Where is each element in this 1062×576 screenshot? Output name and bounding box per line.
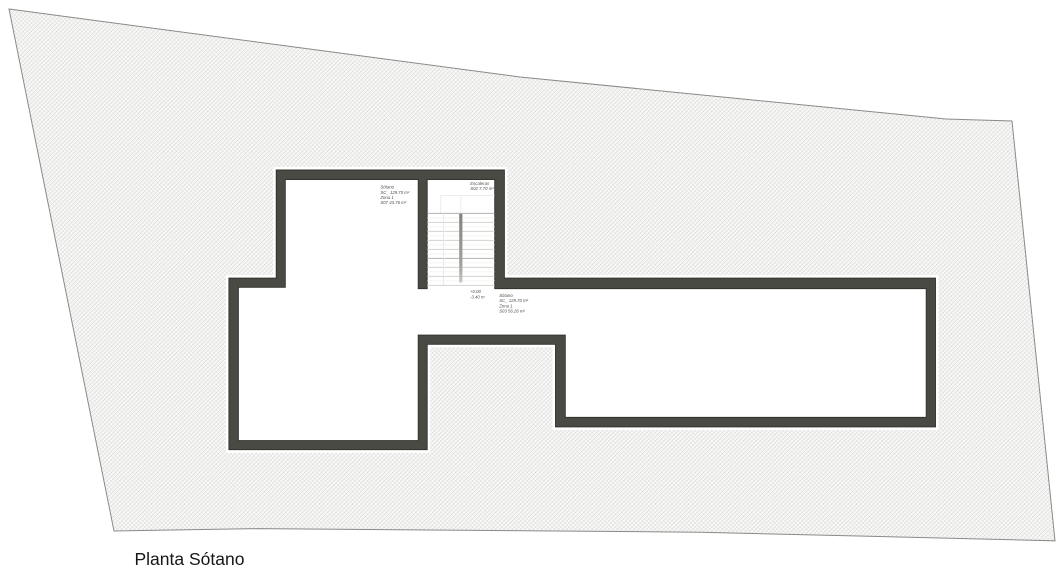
svg-text:-3.40 m: -3.40 m <box>470 294 485 299</box>
svg-text:S02 7.70 m²: S02 7.70 m² <box>470 186 494 191</box>
svg-text:S07 43.76 m²: S07 43.76 m² <box>380 200 406 205</box>
svg-text:S03 56.26 m²: S03 56.26 m² <box>499 309 525 314</box>
svg-text:Planta Sótano: Planta Sótano <box>135 549 245 569</box>
